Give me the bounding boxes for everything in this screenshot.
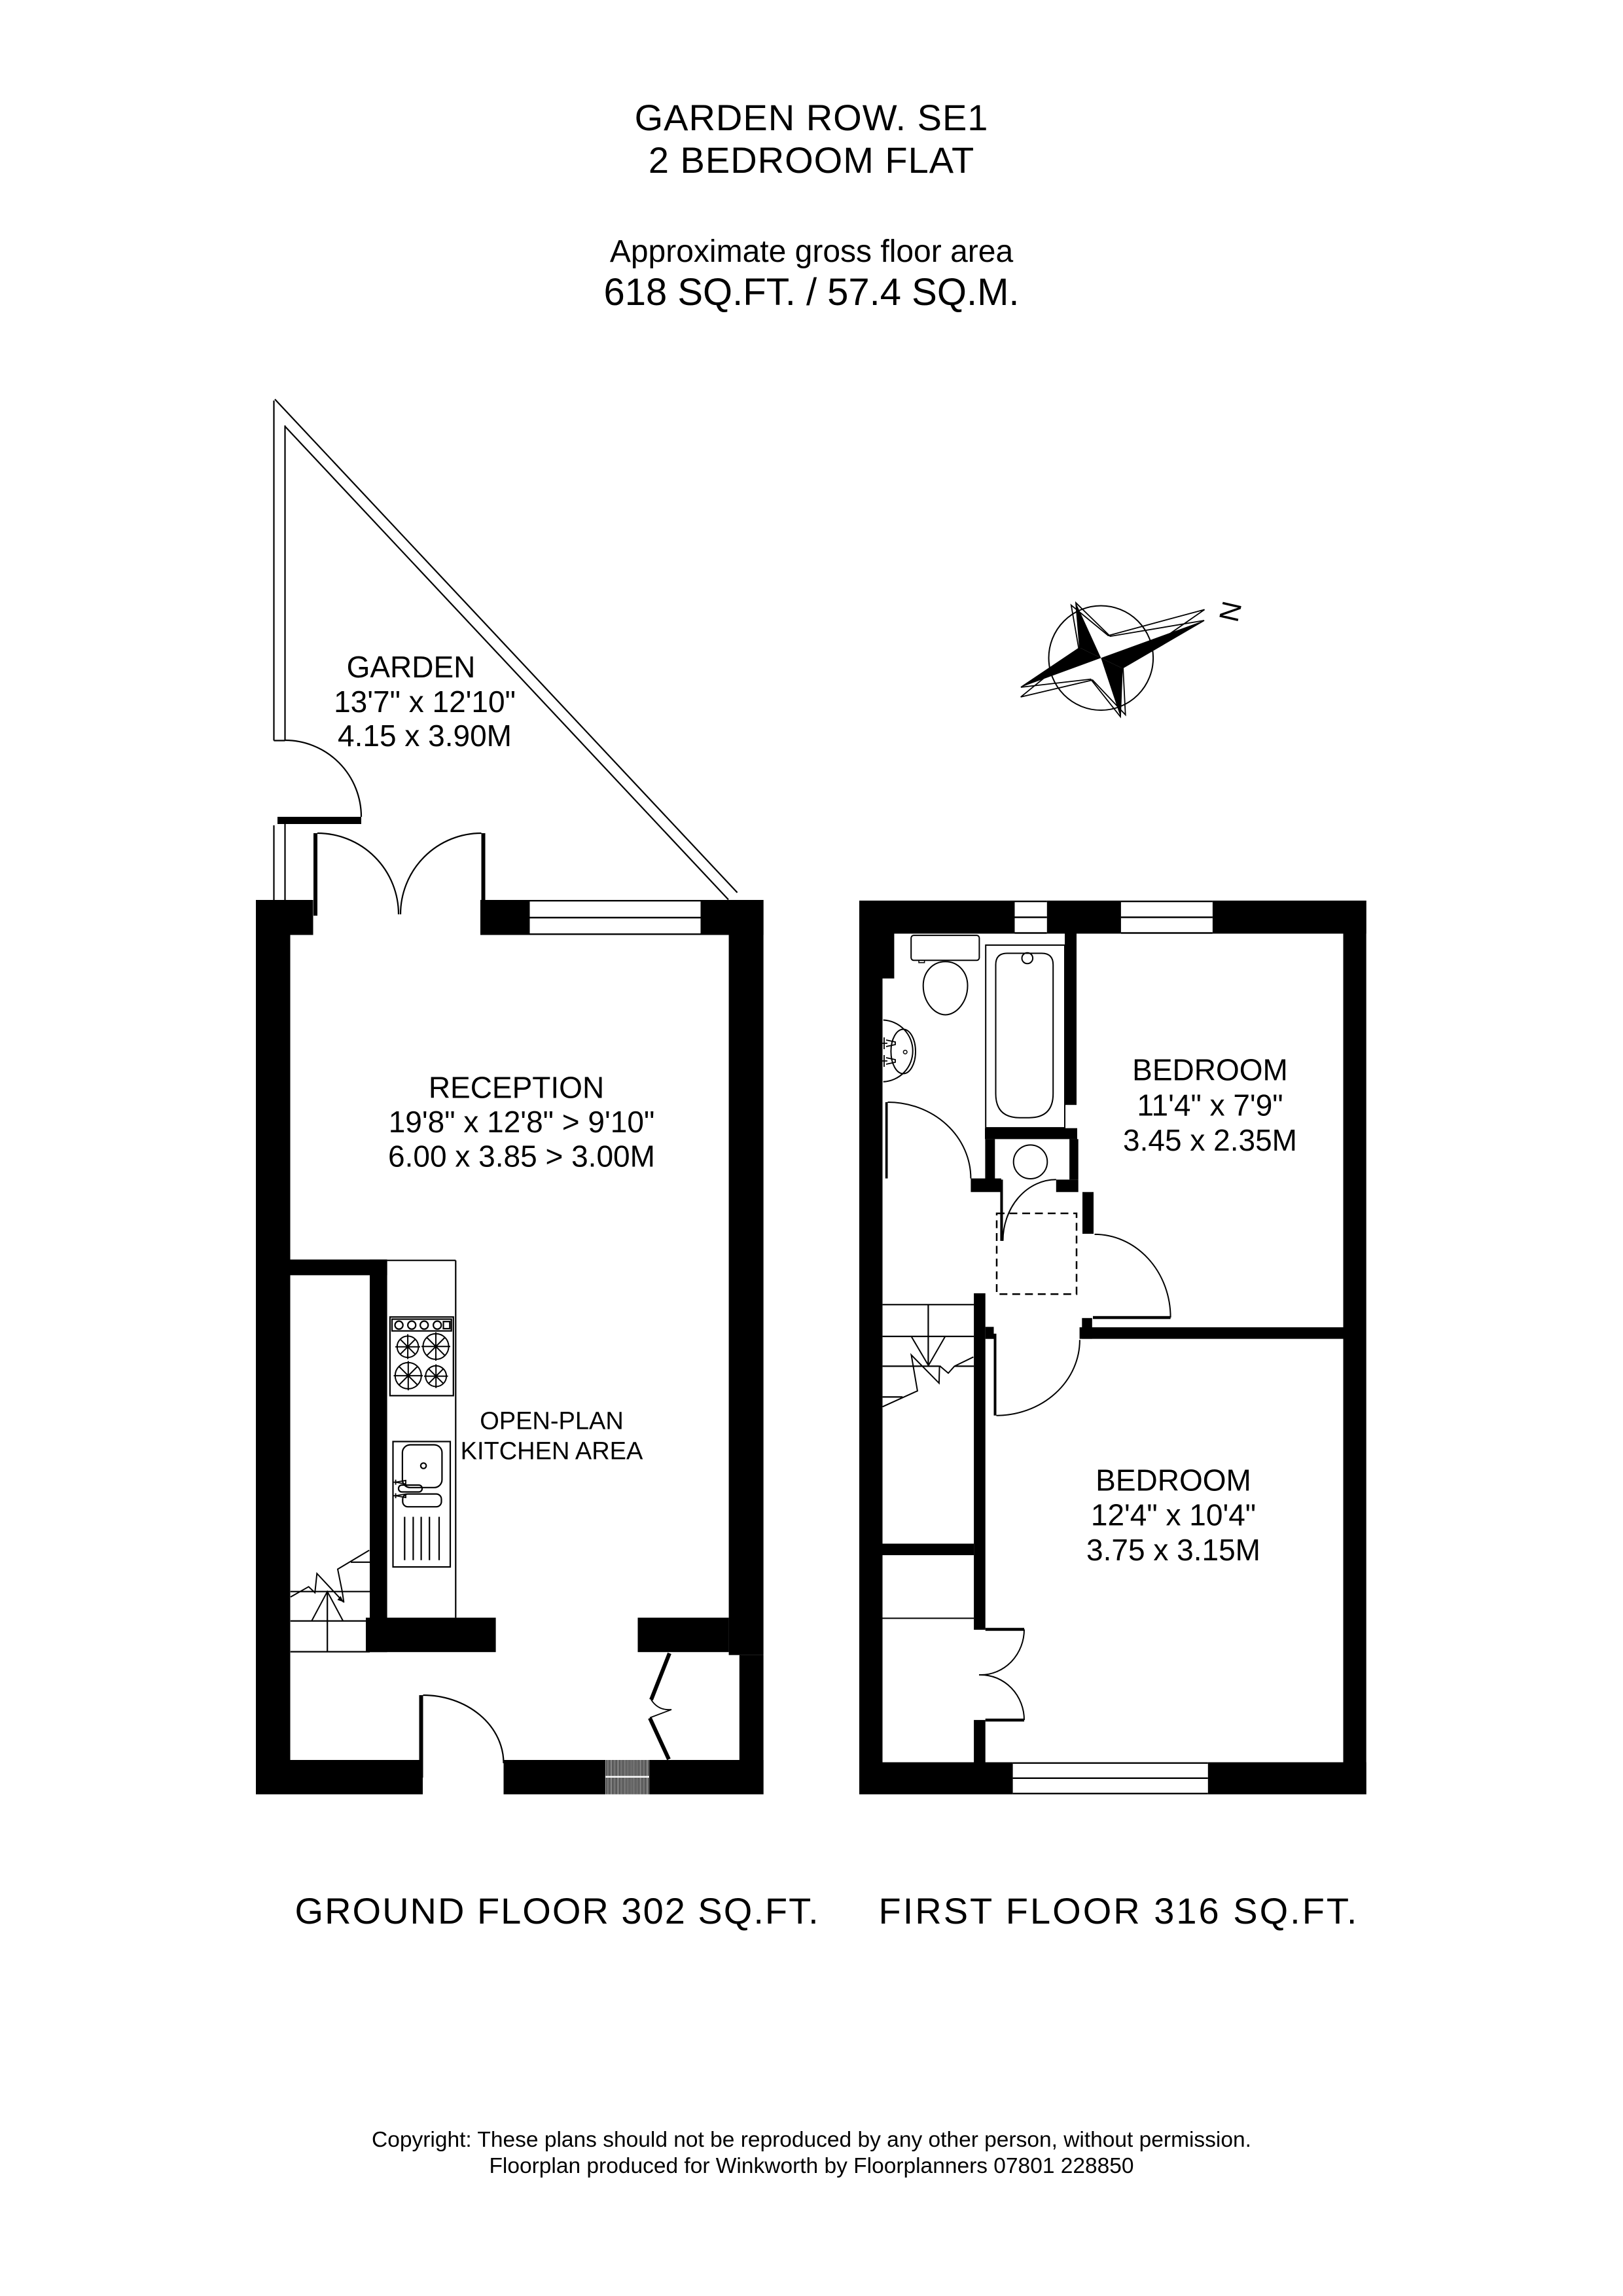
svg-text:OPEN-PLAN: OPEN-PLAN [480, 1408, 624, 1435]
svg-text:FIRST FLOOR 316 SQ.FT.: FIRST FLOOR 316 SQ.FT. [878, 1890, 1359, 1931]
svg-text:6.00 x 3.85 > 3.00M: 6.00 x 3.85 > 3.00M [388, 1139, 655, 1174]
svg-text:19'8" x 12'8" > 9'10": 19'8" x 12'8" > 9'10" [389, 1105, 655, 1139]
svg-text:4.15 x 3.90M: 4.15 x 3.90M [338, 719, 512, 753]
svg-text:3.75 x 3.15M: 3.75 x 3.15M [1086, 1533, 1260, 1567]
svg-text:BEDROOM: BEDROOM [1096, 1463, 1251, 1497]
svg-text:12'4" x 10'4": 12'4" x 10'4" [1091, 1498, 1256, 1532]
svg-text:GARDEN ROW. SE1: GARDEN ROW. SE1 [635, 97, 989, 138]
svg-text:618 SQ.FT. / 57.4 SQ.M.: 618 SQ.FT. / 57.4 SQ.M. [603, 271, 1019, 314]
svg-text:3.45 x 2.35M: 3.45 x 2.35M [1123, 1123, 1297, 1157]
svg-text:11'4" x 7'9": 11'4" x 7'9" [1137, 1088, 1283, 1122]
svg-text:GROUND FLOOR 302 SQ.FT.: GROUND FLOOR 302 SQ.FT. [295, 1890, 820, 1931]
svg-text:13'7" x 12'10": 13'7" x 12'10" [334, 685, 516, 719]
svg-text:GARDEN: GARDEN [347, 650, 476, 684]
svg-text:2 BEDROOM FLAT: 2 BEDROOM FLAT [649, 139, 974, 181]
svg-text:Approximate gross floor area: Approximate gross floor area [610, 234, 1014, 269]
svg-text:RECEPTION: RECEPTION [429, 1071, 604, 1105]
svg-text:Copyright: These plans should: Copyright: These plans should not be rep… [372, 2128, 1251, 2152]
svg-text:BEDROOM: BEDROOM [1132, 1053, 1288, 1087]
svg-text:KITCHEN AREA: KITCHEN AREA [461, 1438, 643, 1465]
svg-text:Floorplan produced for Winkwor: Floorplan produced for Winkworth by Floo… [489, 2154, 1133, 2178]
